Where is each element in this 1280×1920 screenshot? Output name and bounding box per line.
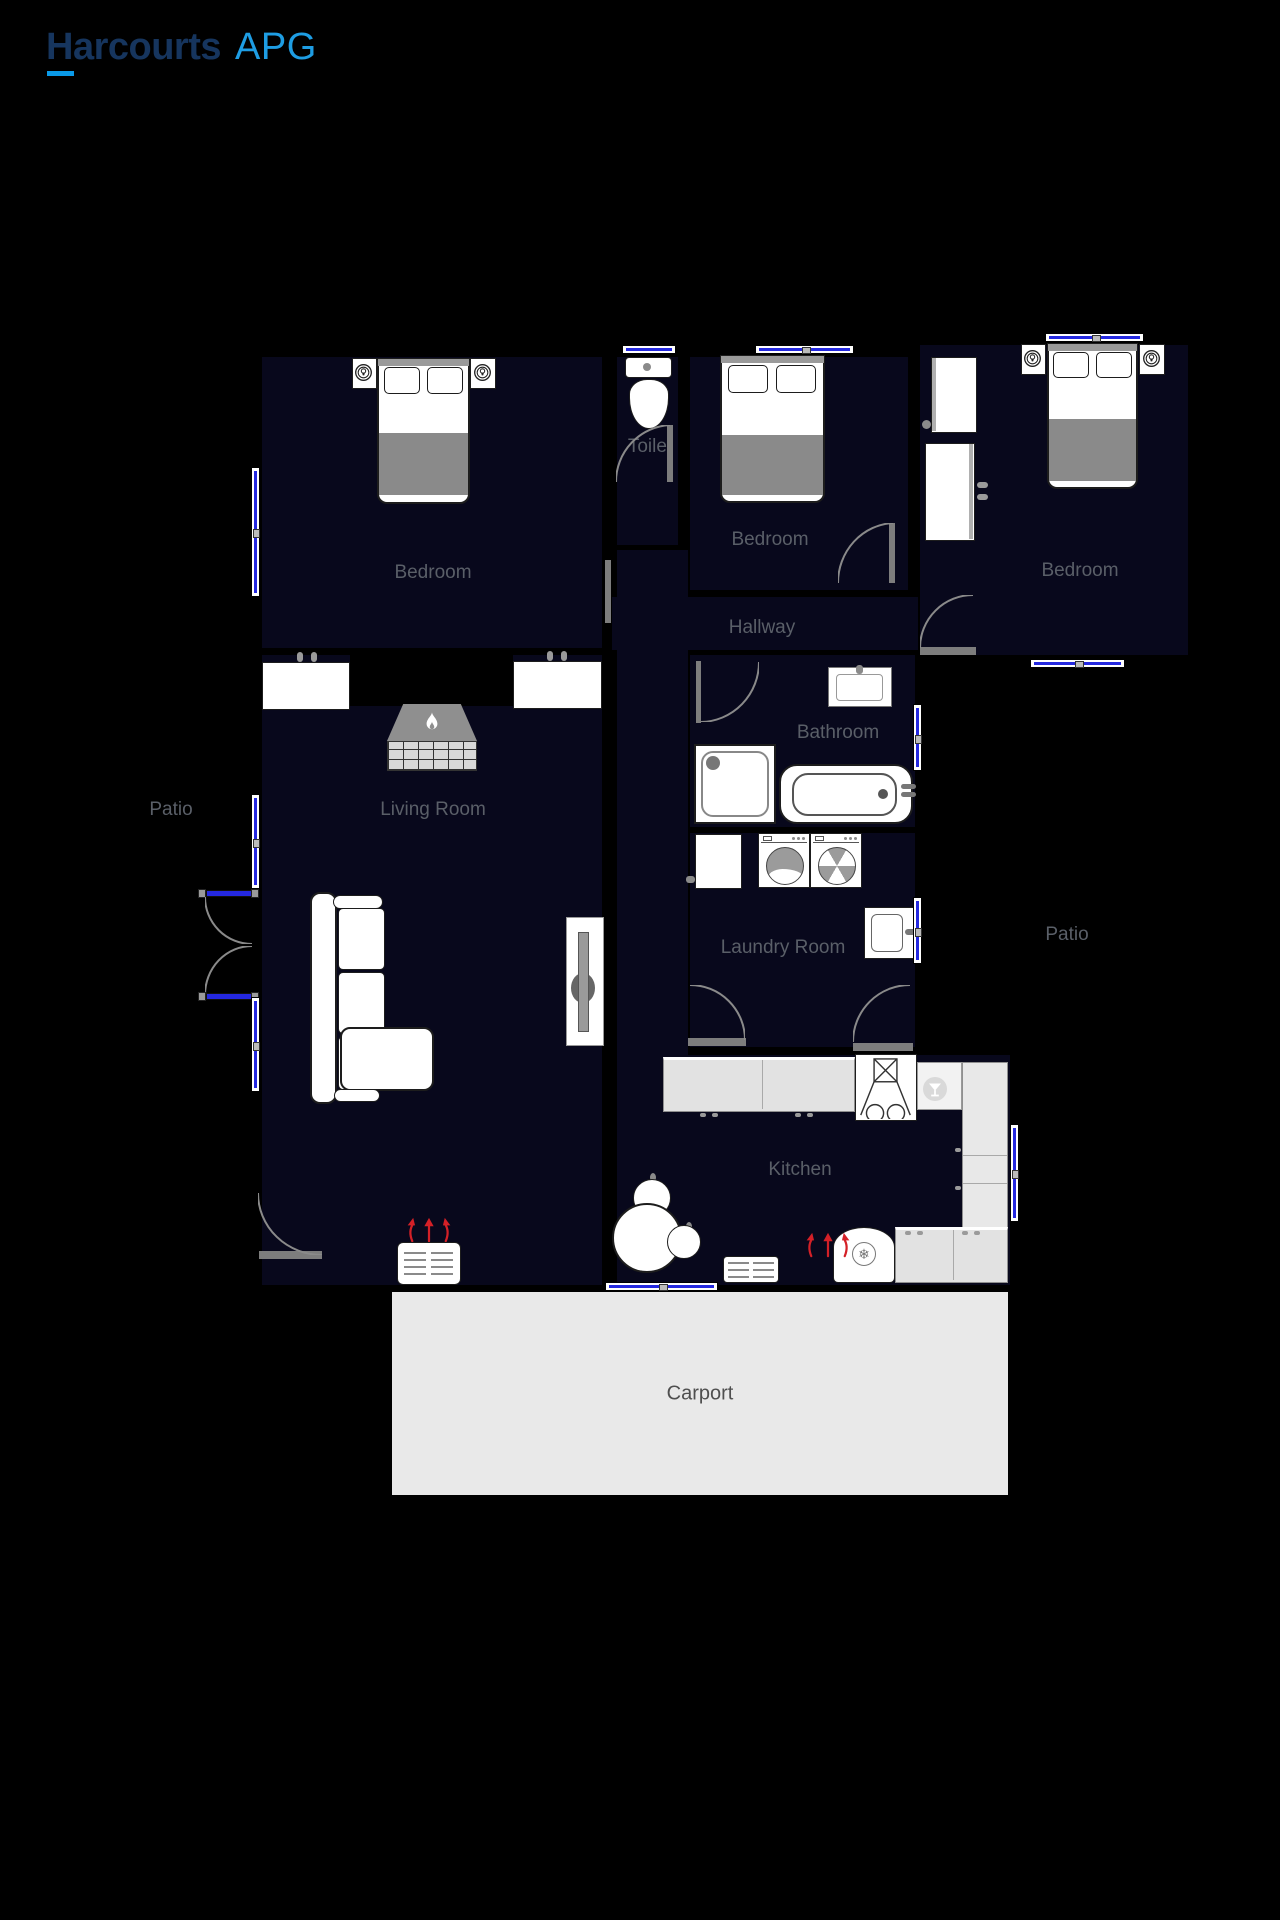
window [251, 997, 260, 1092]
door-arc-icon [205, 946, 252, 995]
door-arc-icon [853, 985, 910, 1042]
sofa-icon [310, 892, 435, 1104]
wardrobe [931, 357, 977, 433]
sideboard-cabinet [262, 662, 350, 710]
bed-headboard [1048, 344, 1137, 351]
window [605, 1282, 718, 1291]
lamp-icon [473, 363, 492, 382]
room-label-patio-right: Patio [1045, 924, 1088, 946]
sink-symbol-icon [923, 1077, 947, 1101]
room-label-bedroom-3: Bedroom [1041, 560, 1118, 582]
nightstand [352, 358, 377, 389]
stove-icon [855, 1054, 917, 1121]
window [1030, 659, 1125, 668]
bathtub-tap [901, 784, 916, 789]
sofa-back [310, 892, 337, 1104]
heater-icon [397, 1242, 461, 1285]
sofa-cushion [338, 972, 385, 1034]
french-door-leaf [206, 890, 252, 897]
toilet-button [643, 363, 651, 371]
tv-icon [566, 917, 604, 1046]
window [251, 794, 260, 889]
wardrobe-handle [977, 482, 988, 488]
bed-blanket [722, 435, 823, 495]
room-label-patio-left: Patio [149, 799, 192, 821]
heat-arrows-icon [800, 1232, 856, 1258]
room-label-kitchen: Kitchen [768, 1159, 831, 1181]
cabinet-knob [547, 651, 553, 661]
window [913, 704, 922, 771]
sofa-armrest [334, 1089, 380, 1102]
kitchen-counter [895, 1227, 1008, 1283]
laundry-cabinet [695, 834, 742, 889]
cabinet-knob [297, 652, 303, 662]
room-label-bedroom-2: Bedroom [731, 529, 808, 551]
door-arc-icon [258, 1193, 322, 1255]
door-leaf [605, 560, 611, 623]
pillow [384, 367, 420, 394]
pillow [1096, 352, 1132, 378]
window [1010, 1124, 1019, 1222]
bed-icon [720, 355, 825, 503]
door-arc-icon [690, 985, 745, 1040]
flame-icon [423, 710, 441, 734]
sofa-chaise [340, 1027, 434, 1091]
door-arc-icon [920, 595, 973, 648]
heat-arrows-icon [401, 1217, 457, 1243]
pillow [427, 367, 463, 394]
door-sill [920, 647, 976, 655]
room-label-bathroom: Bathroom [797, 722, 879, 744]
nightstand [1021, 344, 1046, 375]
shower-drain [706, 756, 720, 770]
door-arc-icon [701, 662, 759, 722]
nightstand [1139, 344, 1165, 375]
lamp-icon [354, 363, 373, 382]
cabinet-knob [561, 651, 567, 661]
kitchen-tall-cabinet [962, 1062, 1008, 1228]
vanity-sink-icon [828, 667, 892, 707]
bathtub-drain [878, 789, 888, 799]
wardrobe-handle [977, 494, 988, 500]
room-label-living: Living Room [380, 799, 486, 821]
bed-blanket [1049, 419, 1136, 481]
bed-icon [1047, 343, 1138, 489]
heater-icon [723, 1256, 779, 1283]
cabinet-knob [311, 652, 317, 662]
floorplan-page: Harcourts APG Bedroom [0, 0, 1280, 1920]
shower-icon [694, 744, 776, 824]
window [622, 345, 676, 354]
chair [667, 1225, 701, 1259]
bathtub-icon [779, 764, 913, 824]
window [251, 467, 260, 597]
window [755, 345, 854, 354]
kitchen-counter [917, 1062, 962, 1110]
lamp-icon [1023, 349, 1042, 368]
dryer-icon [810, 833, 862, 888]
faucet [856, 665, 863, 674]
bathtub-tap [901, 792, 916, 797]
door-arc-icon [838, 523, 893, 583]
pillow [1053, 352, 1089, 378]
wardrobe-handle [922, 420, 931, 429]
french-door-leaf [206, 993, 252, 1000]
window [913, 897, 922, 964]
door-sill [853, 1043, 913, 1051]
room-label-carport: Carport [667, 1383, 734, 1406]
bed-headboard [721, 356, 824, 363]
door-arc-icon [616, 425, 670, 482]
chimney-niche [350, 648, 513, 706]
sideboard-cabinet [513, 661, 602, 709]
fireplace-hearth [387, 741, 477, 771]
kitchen-counter [663, 1057, 855, 1112]
lamp-icon [1142, 349, 1161, 368]
cabinet-handle [686, 876, 695, 883]
laundry-sink-icon [864, 907, 914, 959]
bed-blanket [379, 433, 468, 495]
sofa-armrest [333, 895, 383, 909]
bed-headboard [378, 359, 469, 366]
window [1045, 333, 1144, 342]
room-label-bedroom-1: Bedroom [394, 562, 471, 584]
floorplan: Bedroom Toilet Bedroom [0, 0, 1280, 1920]
room-label-laundry: Laundry Room [721, 937, 846, 959]
pillow [776, 365, 816, 393]
wardrobe [925, 443, 975, 541]
washing-machine-icon [758, 833, 810, 888]
bed-icon [377, 358, 470, 504]
door-arc-icon [205, 897, 252, 944]
nightstand [470, 358, 496, 389]
room-label-hallway: Hallway [729, 617, 796, 639]
pillow [728, 365, 768, 393]
sofa-cushion [338, 908, 385, 970]
